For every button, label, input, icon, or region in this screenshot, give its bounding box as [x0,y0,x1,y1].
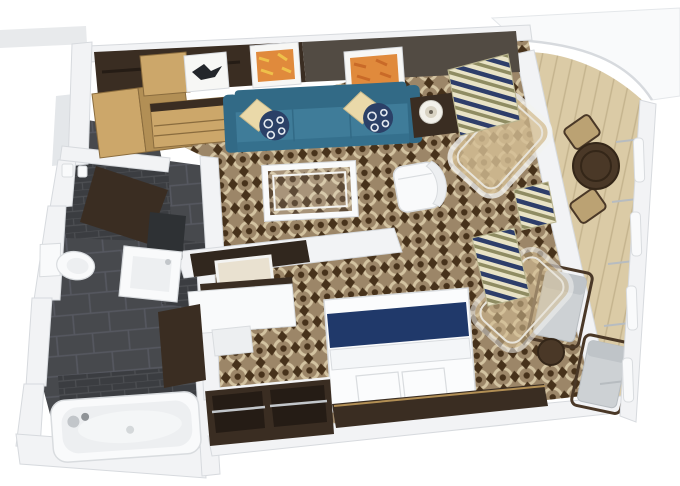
railing-window-1 [633,138,645,182]
railing-window-4 [622,358,634,402]
shower-control-1 [62,164,73,177]
coffee-table-glass [268,167,352,215]
balcony-table [573,143,619,189]
bedroom-bath-door [158,304,206,388]
closet-door-panel-1 [92,88,146,158]
balcony-side-table [538,339,564,365]
sofa [222,81,422,153]
coffee-table [262,161,359,222]
curtain-stack-2 [514,182,556,230]
sink-faucet [165,259,171,265]
table-lamp-finial [429,110,433,114]
orange-art-1-canvas [256,49,295,82]
bathtub [50,391,202,463]
bed-pillow-left [356,372,401,402]
desk-stool [212,326,253,356]
railing-window-2 [630,212,642,256]
railing-window-3 [626,286,638,330]
floorplan-image [0,0,680,486]
bed-pillow-right [402,368,447,398]
closet-door-panel-3 [140,52,190,96]
shower-control-2 [78,166,87,177]
